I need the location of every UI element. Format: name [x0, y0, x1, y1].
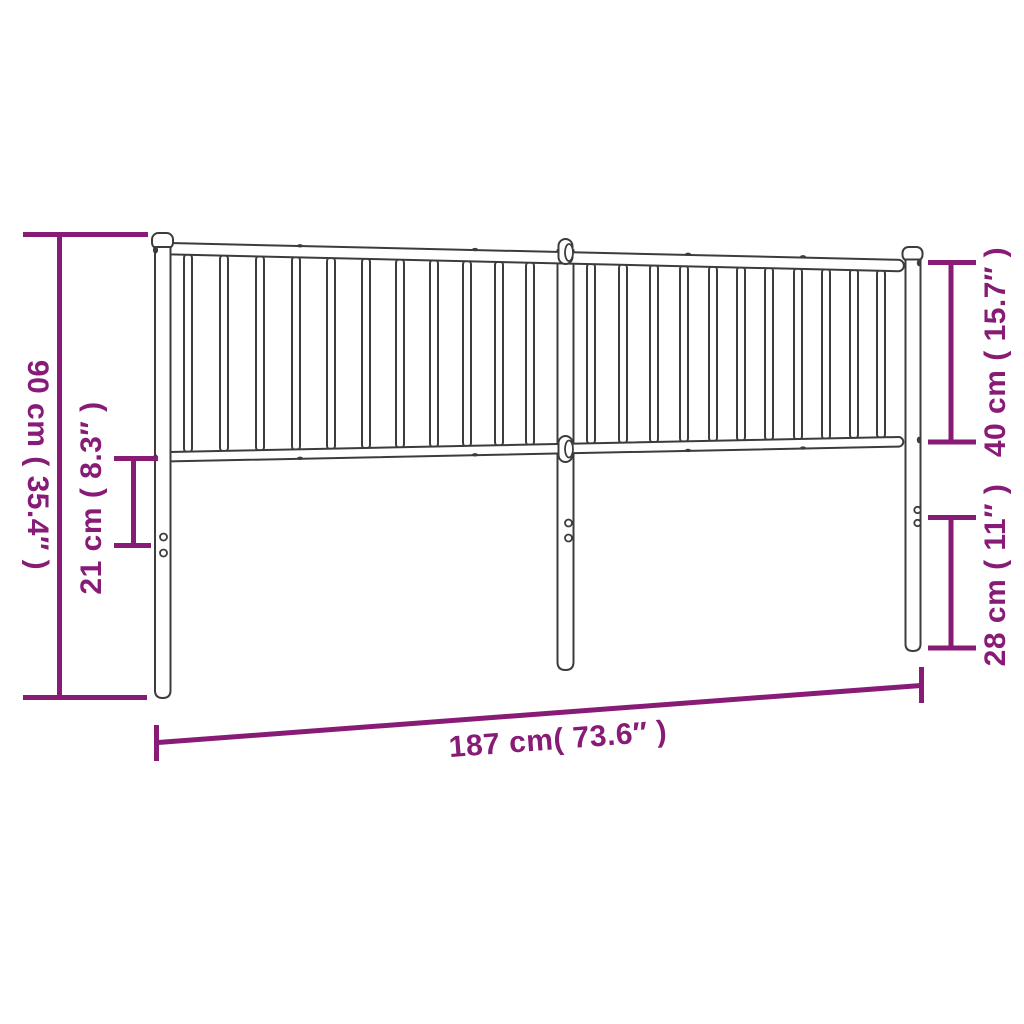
headboard-bar	[396, 259, 404, 449]
headboard-bar	[877, 269, 885, 438]
dimension-label-total-height: 90 cm ( 35.4″ )	[20, 360, 54, 570]
headboard-bar	[430, 259, 438, 447]
headboard-bar	[256, 256, 264, 452]
center-post-bottom-bracket	[559, 436, 574, 462]
bottom-rail	[170, 437, 903, 461]
screw-holes	[160, 507, 921, 557]
headboard-bar	[765, 267, 773, 441]
center-post-top-bracket	[559, 239, 574, 264]
headboard-bar	[327, 257, 335, 450]
rail-bolts	[153, 246, 921, 461]
headboard-bar	[680, 265, 688, 443]
headboard-bar	[587, 263, 595, 445]
top-rail	[170, 243, 904, 271]
headboard-bar	[220, 255, 228, 452]
dimension-line-inner-21cm	[114, 459, 158, 546]
headboard-bar	[822, 268, 830, 439]
headboard-bar	[292, 256, 300, 450]
headboard-bar	[850, 269, 858, 439]
weld-marks	[297, 244, 806, 460]
headboard-bar	[362, 258, 370, 449]
dimension-label-left-leg-section: 21 cm ( 8.3″ )	[75, 401, 109, 594]
dimension-line-lower-28cm	[928, 518, 976, 649]
vertical-bars	[184, 254, 885, 453]
dimension-label-lower-leg-height: 28 cm ( 11″ )	[979, 484, 1013, 667]
headboard-bar	[619, 264, 627, 444]
dimension-label-panel-height: 40 cm ( 15.7″ )	[979, 247, 1013, 457]
headboard-bar	[709, 266, 717, 442]
headboard-bar	[463, 260, 471, 447]
left-post	[152, 233, 173, 698]
headboard-bar	[495, 261, 503, 446]
headboard-bar	[184, 254, 192, 453]
headboard-illustration	[0, 0, 1024, 1024]
headboard-bar	[650, 264, 658, 443]
right-post	[903, 247, 923, 651]
headboard-bar	[737, 266, 745, 441]
headboard-bar	[526, 262, 534, 446]
dimension-line-upper-40cm	[928, 263, 976, 443]
headboard-bar	[794, 268, 802, 441]
product-dimension-diagram: 90 cm ( 35.4″ ) 21 cm ( 8.3″ ) 40 cm ( 1…	[0, 0, 1024, 1024]
